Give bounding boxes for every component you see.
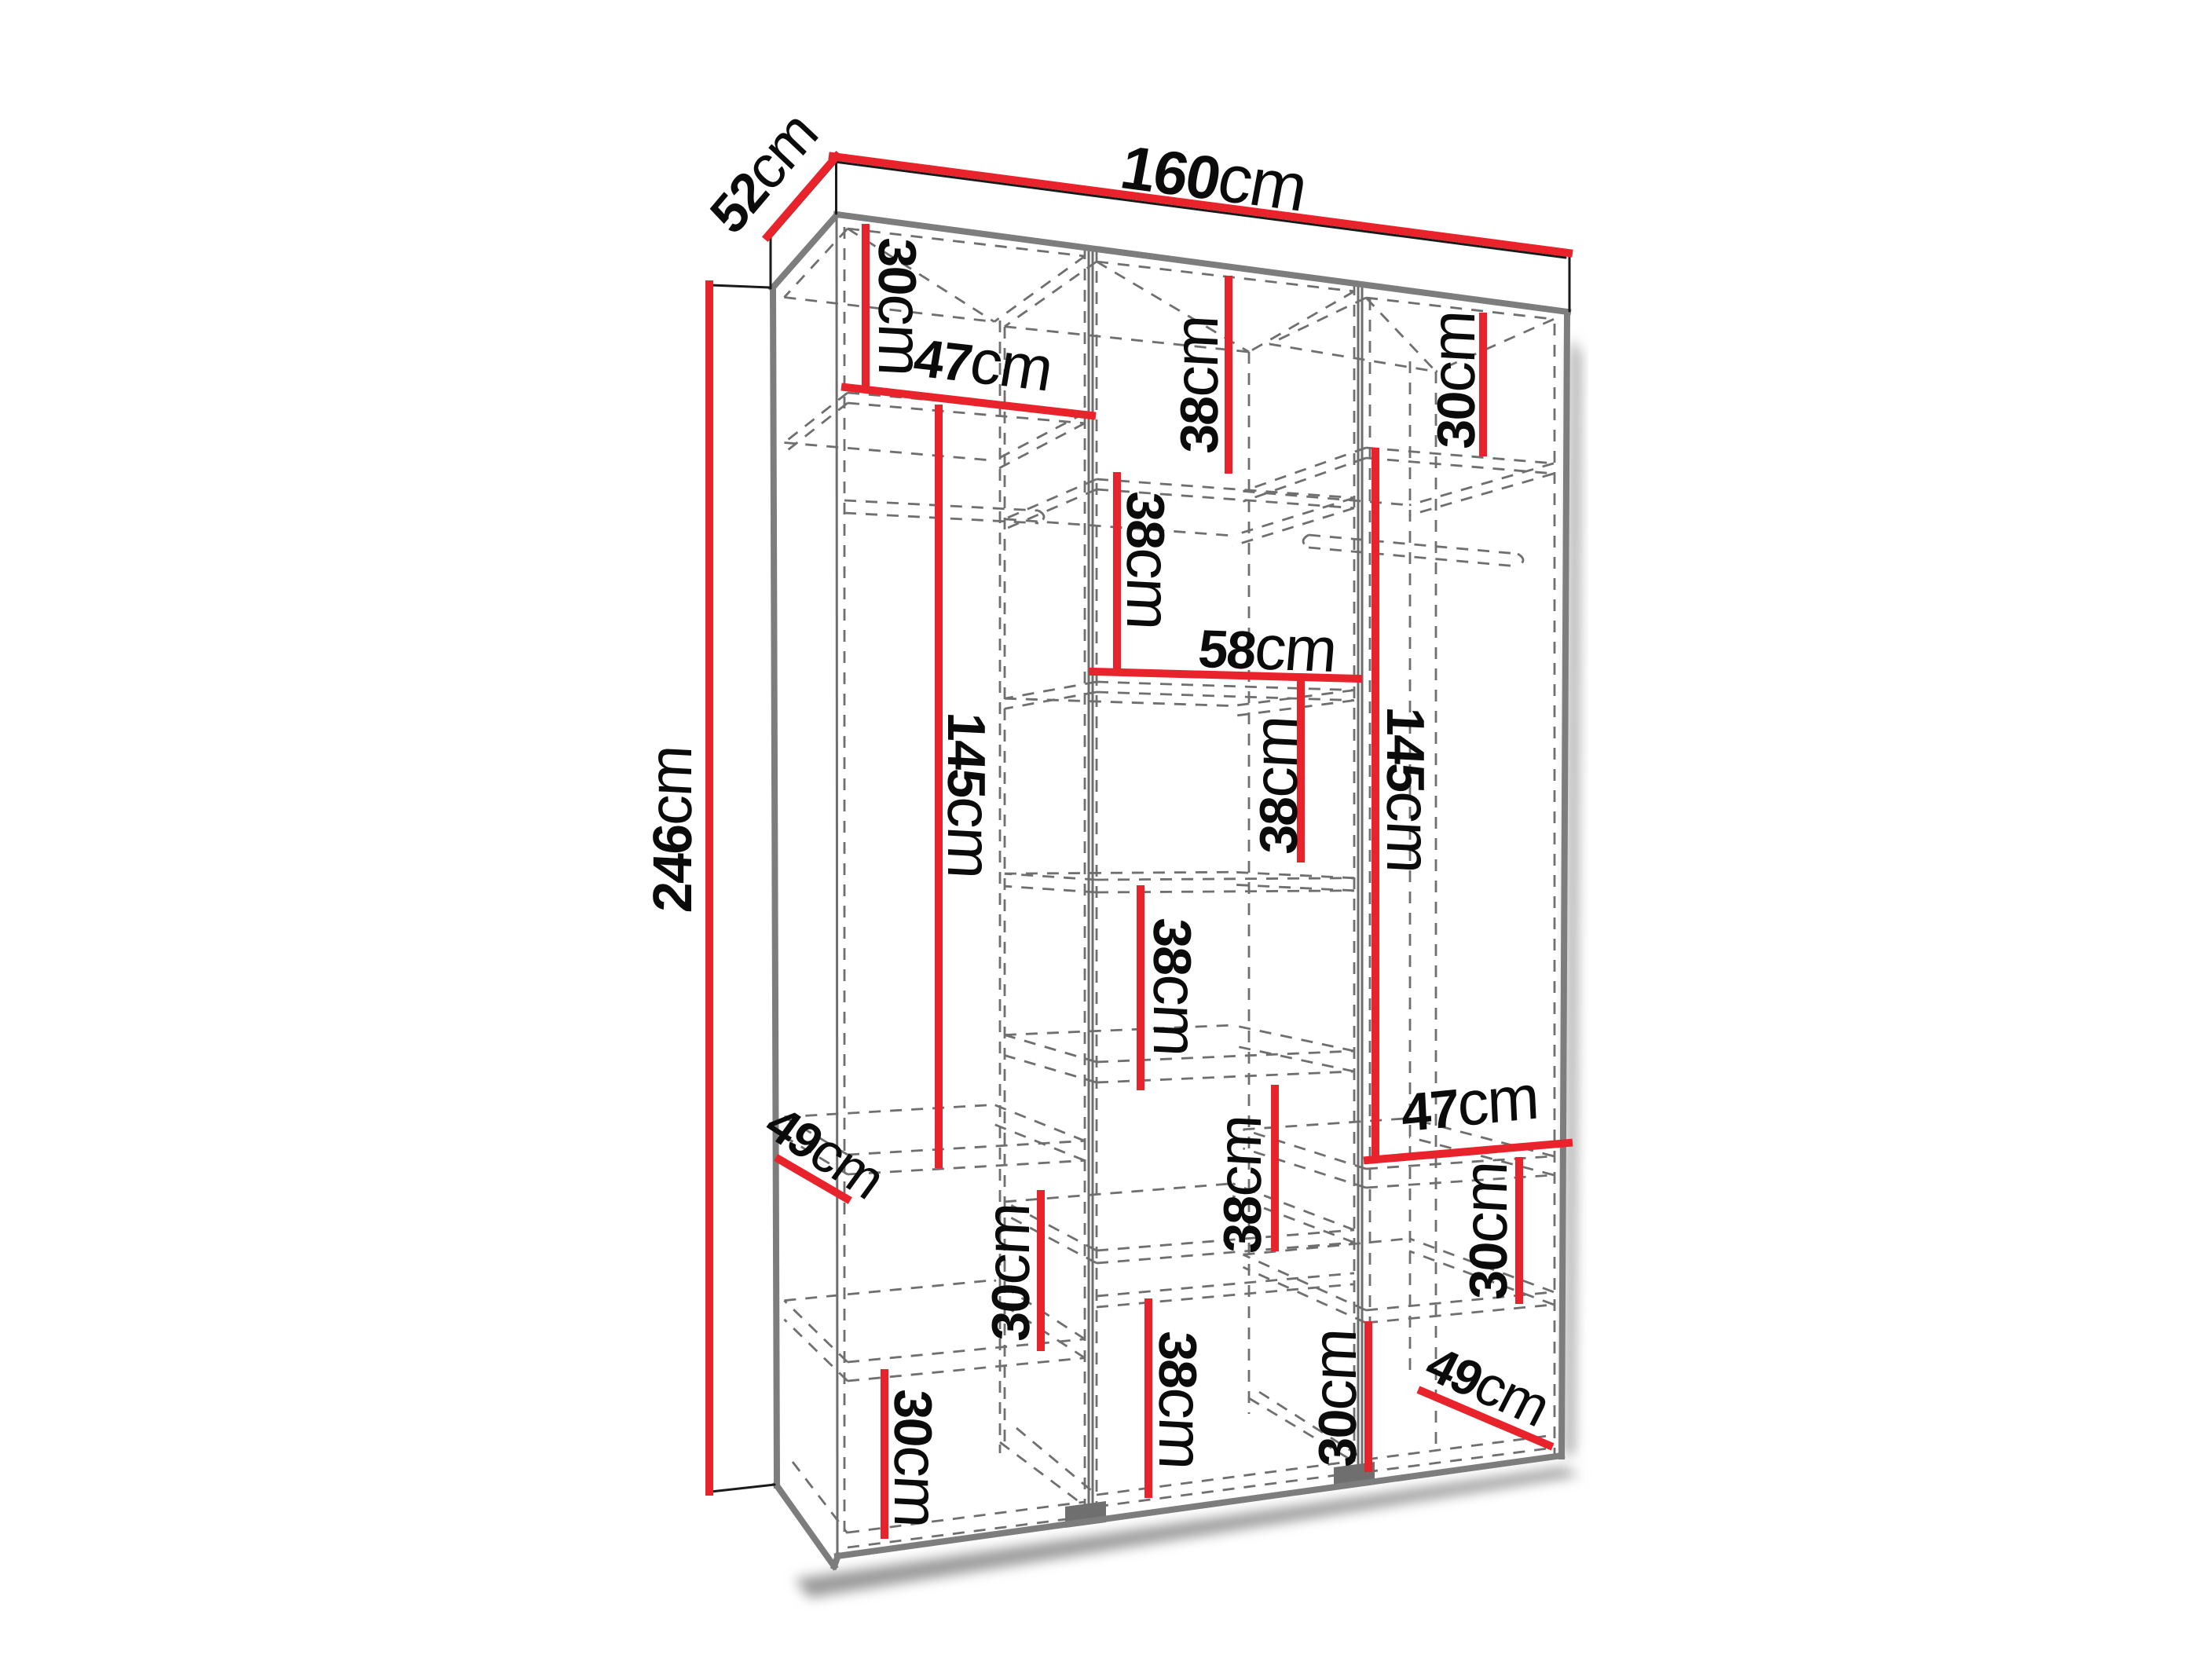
svg-text:38cm: 38cm [1204,1114,1274,1254]
svg-text:38cm: 38cm [1146,1330,1216,1470]
svg-text:145cm: 145cm [935,711,1005,880]
svg-text:38cm: 38cm [1161,314,1231,455]
svg-text:38cm: 38cm [1141,917,1210,1057]
svg-text:30cm: 30cm [1418,309,1488,450]
svg-text:30cm: 30cm [972,1202,1042,1342]
svg-text:30cm: 30cm [881,1388,951,1529]
svg-text:30cm: 30cm [1450,1160,1520,1301]
svg-text:145cm: 145cm [1374,705,1444,874]
svg-text:246cm: 246cm [635,745,705,914]
svg-text:58cm: 58cm [1196,610,1339,685]
svg-text:38cm: 38cm [1114,490,1184,631]
svg-text:30cm: 30cm [1299,1328,1369,1468]
svg-text:38cm: 38cm [1240,715,1310,855]
